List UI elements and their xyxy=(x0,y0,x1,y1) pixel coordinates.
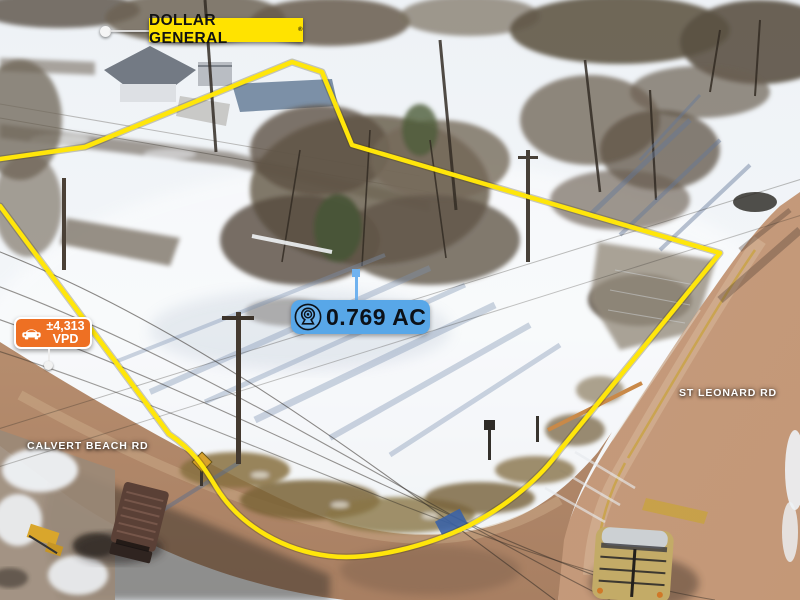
store-location-dot xyxy=(100,26,111,37)
traffic-location-dot xyxy=(44,361,53,370)
traffic-count-text: ±4,313 VPD xyxy=(46,320,85,346)
store-leader-line xyxy=(111,30,149,32)
car-icon xyxy=(21,326,42,341)
location-pin-icon xyxy=(294,303,322,331)
aerial-photo: DOLLAR GENERAL® 0.769 AC ±4,313 VPD CALV… xyxy=(0,0,800,600)
acreage-value: 0.769 AC xyxy=(326,304,426,331)
traffic-count-unit: VPD xyxy=(46,333,85,346)
store-label-text: DOLLAR GENERAL xyxy=(149,12,297,48)
acreage-badge: 0.769 AC xyxy=(291,300,430,334)
road-label-st-leonard: ST LEONARD RD xyxy=(679,387,777,399)
traffic-count-badge: ±4,313 VPD xyxy=(14,317,92,349)
road-label-calvert-beach: CALVERT BEACH RD xyxy=(27,440,149,452)
acreage-stem xyxy=(355,275,358,301)
store-label: DOLLAR GENERAL® xyxy=(149,18,303,42)
